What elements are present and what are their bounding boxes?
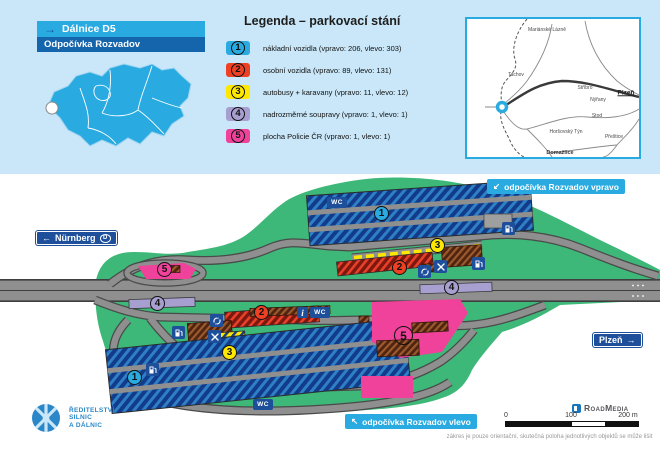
legend-number: 1 <box>231 41 245 55</box>
legend-number: 4 <box>231 107 245 121</box>
marker-oversize-left: 4 <box>150 296 165 311</box>
legend-label: osobní vozidla (vpravo: 89, vlevo: 131) <box>263 66 391 75</box>
agency-name: ŘEDITELSTVÍ SILNIC A DÁLNIC <box>69 407 115 429</box>
arrow-upleft-icon: ↖ <box>351 416 358 427</box>
top-panel: → Dálnice D5 Odpočívka Rozvadov Legenda <box>0 0 660 174</box>
plzen-sign: Plzeň → <box>593 333 642 347</box>
nurnberg-sign: ← Nürnberg D <box>36 231 117 245</box>
rest-area-map-page: → Dálnice D5 Odpočívka Rozvadov Legenda <box>0 0 660 466</box>
road-directorate-logo: ŘEDITELSTVÍ SILNIC A DÁLNIC <box>30 402 115 434</box>
marker-buses-right: 3 <box>430 238 445 253</box>
legend-chip-trucks: 1 <box>226 41 250 55</box>
legend-label: nadrozměrné soupravy (vpravo: 1, vlevo: … <box>263 110 408 119</box>
marker-police-left: 5 <box>157 262 172 277</box>
legend-chip-oversize: 4 <box>226 107 250 121</box>
agency-line: SILNIC <box>69 414 115 421</box>
restaurant-icon <box>208 330 221 343</box>
rest-area-left-label: odpočívka Rozvadov vlevo <box>362 417 471 427</box>
town-label: Tachov <box>508 73 524 79</box>
scale-segment <box>506 422 572 426</box>
circular-arrows-icon <box>210 314 223 327</box>
state-border-line <box>501 19 527 157</box>
rozvadov-location-dot <box>46 102 58 114</box>
legend-number: 5 <box>231 129 245 143</box>
nurnberg-label: Nürnberg <box>55 233 96 243</box>
country-badge: D <box>100 234 111 243</box>
legend-label: autobusy + karavany (vpravo: 11, vlevo: … <box>263 88 408 97</box>
marker-police-area: 5 <box>394 326 413 345</box>
town-label-plzen: Plzeň <box>618 89 635 96</box>
legend-item-trucks: 1 nákladní vozidla (vpravo: 206, vlevo: … <box>226 41 461 55</box>
czech-outline <box>48 64 191 146</box>
legend-number: 2 <box>231 63 245 77</box>
legend-label: plocha Policie ČR (vpravo: 1, vlevo: 1) <box>263 132 390 141</box>
scale-bar <box>505 421 639 427</box>
rest-area-left-sign: ↖ odpočívka Rozvadov vlevo <box>345 414 477 429</box>
wc-icon: WC <box>327 197 347 208</box>
town-label: Domažlice <box>546 150 573 156</box>
road-title: Dálnice D5 <box>62 23 116 35</box>
circular-arrows-icon <box>418 265 431 278</box>
legend: Legenda – parkovací stání 1 nákladní voz… <box>226 14 461 151</box>
site-title: Odpočívka Rozvadov <box>44 39 140 50</box>
marker-trucks-right: 1 <box>374 206 389 221</box>
arrow-right-icon: → <box>44 22 56 36</box>
legend-chip-buses: 3 <box>226 85 250 99</box>
wc-icon: WC <box>253 399 273 410</box>
info-icon: i <box>297 307 308 318</box>
site-title-bar: Odpočívka Rozvadov <box>37 37 205 52</box>
fuel-icon <box>172 326 185 339</box>
legend-number: 3 <box>231 85 245 99</box>
fuel-icon <box>472 257 485 270</box>
town-label: Stříbro <box>577 86 592 92</box>
legend-item-oversize: 4 nadrozměrné soupravy (vpravo: 1, vlevo… <box>226 107 461 121</box>
legend-item-police: 5 plocha Policie ČR (vpravo: 1, vlevo: 1… <box>226 129 461 143</box>
marker-cars-right: 2 <box>392 260 407 275</box>
scale-label-0: 0 <box>504 412 508 419</box>
arrow-downleft-icon: ↙ <box>493 181 500 192</box>
legend-label: nákladní vozidla (vpravo: 206, vlevo: 30… <box>263 44 401 53</box>
restaurant-icon <box>434 260 447 273</box>
marker-trucks-left: 1 <box>127 370 142 385</box>
rest-area-right-label: odpočívka Rozvadov vpravo <box>504 182 619 192</box>
fuel-icon <box>502 222 515 235</box>
arrow-right-icon: → <box>627 335 636 345</box>
legend-item-cars: 2 osobní vozidla (vpravo: 89, vlevo: 131… <box>226 63 461 77</box>
wc-icon: WC <box>310 307 330 318</box>
rest-area-ring-marker <box>498 103 507 112</box>
agency-line: ŘEDITELSTVÍ <box>69 407 115 414</box>
marker-buses-left: 3 <box>222 345 237 360</box>
rsd-emblem-icon <box>30 402 62 434</box>
scale-label-100: 100 <box>565 412 577 419</box>
plzen-label: Plzeň <box>599 335 623 345</box>
legend-chip-cars: 2 <box>226 63 250 77</box>
legend-title: Legenda – parkovací stání <box>244 14 461 28</box>
marker-cars-left: 2 <box>254 305 269 320</box>
town-label: Nýřany <box>590 98 606 104</box>
legend-chip-police: 5 <box>226 129 250 143</box>
legend-item-buses: 3 autobusy + karavany (vpravo: 11, vlevo… <box>226 85 461 99</box>
town-label: Mariánské Lázně <box>527 28 567 34</box>
czech-republic-map <box>40 58 195 158</box>
scale-segment <box>572 422 605 426</box>
marker-oversize-right: 4 <box>444 280 459 295</box>
town-label: Horšovský Týn <box>548 130 584 136</box>
road-title-bar: → Dálnice D5 <box>37 21 205 37</box>
fuel-icon <box>146 363 159 376</box>
scale-segment <box>605 422 638 426</box>
town-label: Stod <box>592 114 602 120</box>
scale-label-200: 200 m <box>618 412 637 419</box>
rest-area-right-sign: ↙ odpočívka Rozvadov vpravo <box>487 179 625 194</box>
town-label: Přeštice <box>605 135 623 141</box>
agency-line: A DÁLNIC <box>69 422 115 429</box>
arrow-left-icon: ← <box>42 233 51 243</box>
disclaimer-text: zákres je pouze orientační, skutečná pol… <box>442 434 657 440</box>
